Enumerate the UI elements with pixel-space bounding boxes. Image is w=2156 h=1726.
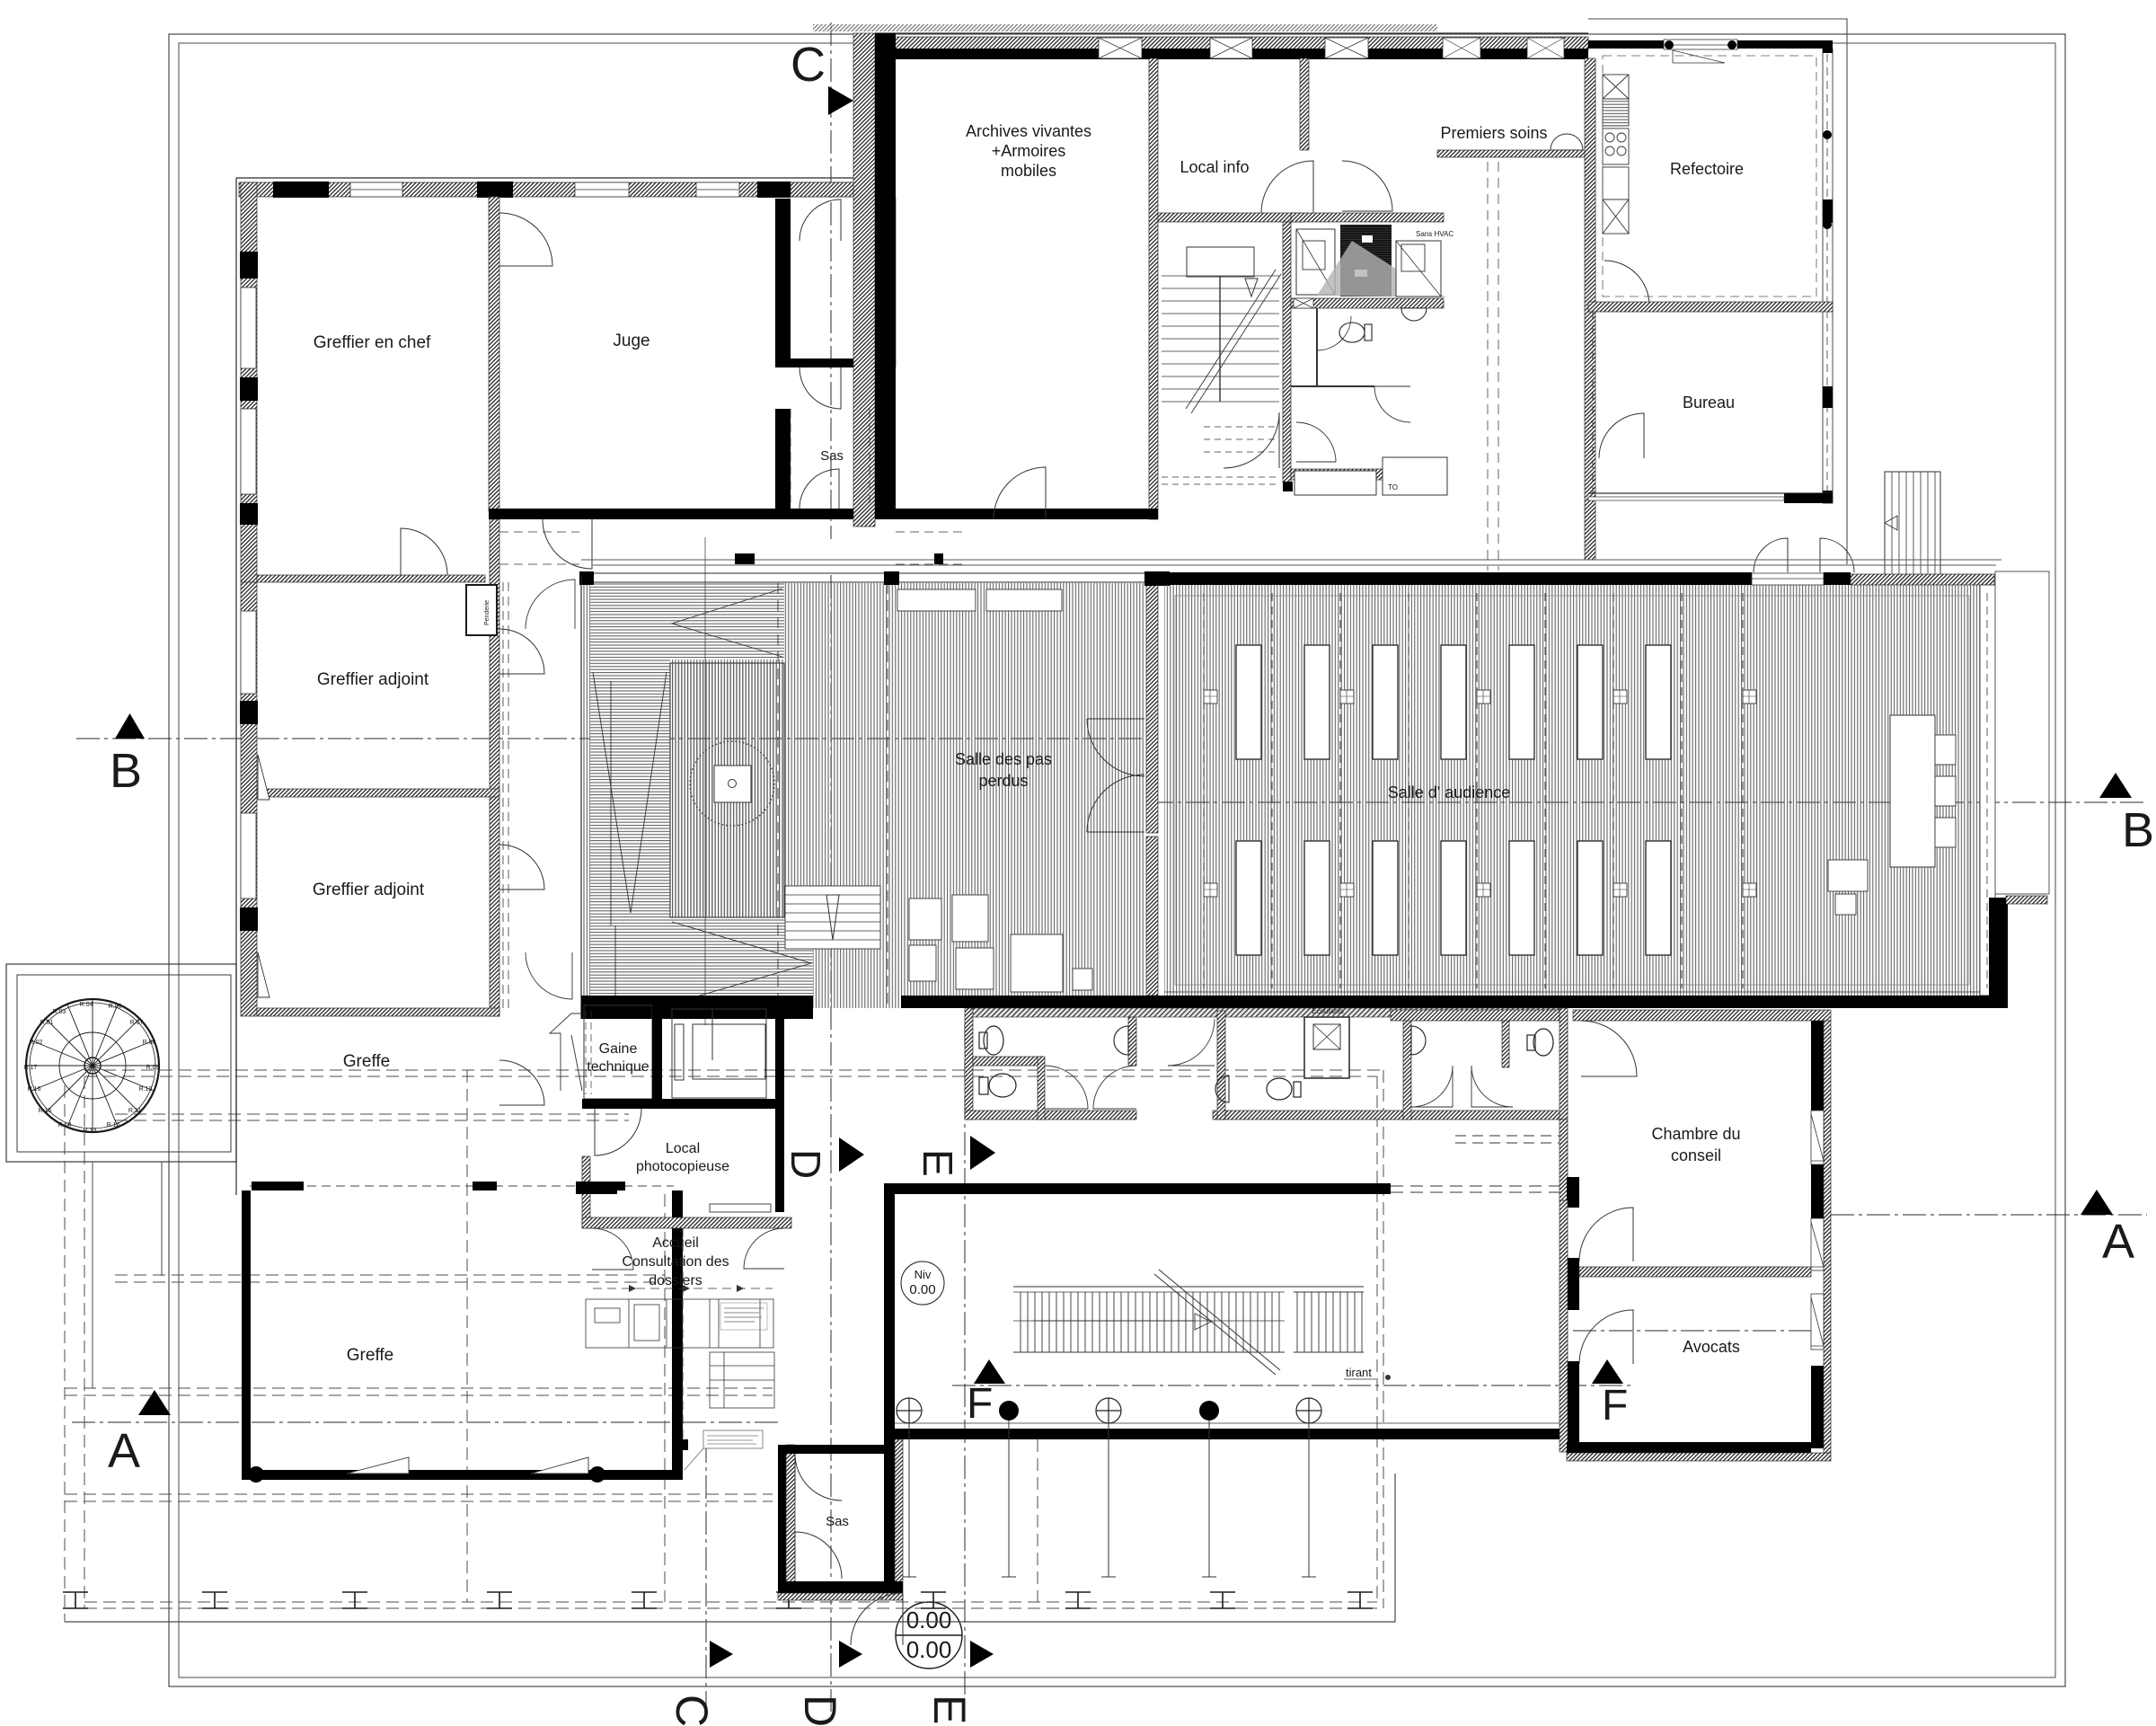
svg-text:Greffier en chef: Greffier en chef	[314, 333, 431, 352]
svg-text:Local info: Local info	[1180, 158, 1249, 176]
svg-text:R.12: R.12	[107, 1122, 120, 1129]
svg-text:E: E	[924, 1695, 975, 1724]
svg-text:Penderie: Penderie	[484, 600, 490, 625]
svg-text:Gaine: Gaine	[599, 1041, 638, 1057]
svg-text:Refectoire: Refectoire	[1670, 160, 1744, 178]
svg-text:+Armoires: +Armoires	[992, 142, 1066, 160]
svg-text:0.00: 0.00	[909, 1282, 935, 1297]
svg-text:Archives vivantes: Archives vivantes	[966, 122, 1091, 140]
svg-text:R.01: R.01	[40, 1020, 54, 1026]
svg-text:F: F	[1602, 1382, 1628, 1429]
svg-text:Ecoutants: Ecoutants	[1312, 1007, 1344, 1015]
svg-text:F: F	[967, 1380, 993, 1428]
svg-text:mobiles: mobiles	[1001, 162, 1056, 180]
svg-text:B: B	[110, 744, 142, 798]
svg-text:Consultation des: Consultation des	[622, 1254, 729, 1270]
svg-text:Juge: Juge	[613, 332, 649, 350]
svg-text:perdus: perdus	[978, 772, 1028, 790]
svg-text:Sas: Sas	[826, 1514, 849, 1529]
svg-text:R.02: R.02	[30, 1040, 43, 1046]
svg-text:Salle des pas: Salle des pas	[955, 750, 1052, 768]
svg-text:Accueil: Accueil	[652, 1235, 699, 1251]
svg-text:0.00: 0.00	[906, 1636, 952, 1663]
svg-text:R.06: R.06	[109, 1004, 122, 1010]
svg-text:Bureau: Bureau	[1683, 394, 1735, 412]
svg-text:C: C	[791, 38, 826, 92]
svg-text:tirant: tirant	[1346, 1366, 1372, 1379]
svg-text:0.00: 0.00	[906, 1607, 952, 1633]
svg-text:technique: technique	[587, 1059, 649, 1075]
svg-text:Premiers soins: Premiers soins	[1440, 124, 1547, 142]
svg-text:R.04: R.04	[80, 1002, 93, 1008]
svg-text:R.03: R.03	[53, 1009, 66, 1015]
svg-text:Local: Local	[666, 1141, 700, 1156]
svg-text:R.17: R.17	[24, 1065, 38, 1071]
svg-text:photocopieuse: photocopieuse	[636, 1159, 729, 1174]
svg-text:E: E	[915, 1149, 961, 1177]
svg-text:A: A	[108, 1424, 140, 1478]
svg-text:R.16: R.16	[28, 1086, 41, 1093]
svg-text:Niv: Niv	[915, 1268, 932, 1281]
svg-text:Avocats: Avocats	[1683, 1338, 1740, 1356]
svg-text:R.08: R.08	[143, 1040, 156, 1046]
svg-text:R.09: R.09	[146, 1065, 160, 1071]
svg-text:dossiers: dossiers	[649, 1273, 702, 1288]
svg-text:R.13: R.13	[84, 1128, 97, 1134]
svg-text:R.11: R.11	[128, 1108, 141, 1114]
svg-text:Greffe: Greffe	[347, 1346, 393, 1365]
svg-text:Sans HVAC: Sans HVAC	[1416, 230, 1454, 238]
svg-text:R.14: R.14	[58, 1122, 72, 1129]
svg-text:TO: TO	[1388, 483, 1398, 491]
svg-text:R.07: R.07	[130, 1020, 144, 1026]
svg-text:A: A	[2102, 1215, 2134, 1269]
svg-text:C: C	[667, 1695, 717, 1726]
svg-text:Greffe: Greffe	[343, 1052, 390, 1071]
svg-text:Greffier adjoint: Greffier adjoint	[313, 881, 425, 899]
svg-text:Chambre du: Chambre du	[1651, 1125, 1740, 1143]
svg-text:D: D	[782, 1149, 829, 1179]
svg-text:conseil: conseil	[1671, 1146, 1721, 1164]
svg-text:D: D	[795, 1695, 845, 1726]
svg-text:Sas: Sas	[820, 448, 844, 464]
svg-text:R.15: R.15	[39, 1108, 52, 1114]
svg-text:B: B	[2122, 803, 2154, 857]
svg-text:R.10: R.10	[139, 1086, 153, 1093]
svg-text:Greffier adjoint: Greffier adjoint	[317, 670, 429, 689]
svg-text:Salle d' audience: Salle d' audience	[1388, 783, 1511, 801]
